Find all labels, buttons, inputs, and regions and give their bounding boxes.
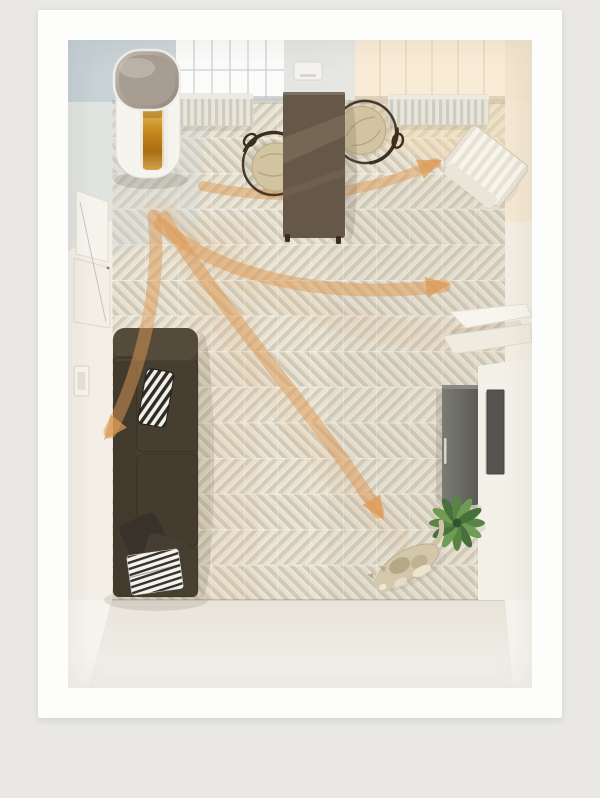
purifier-top-cap <box>114 50 180 110</box>
window-right <box>355 40 507 100</box>
purifier-filter-window <box>133 102 168 172</box>
wall-panel <box>485 390 504 474</box>
room-photo <box>68 40 532 688</box>
photo-frame-card <box>38 10 562 718</box>
sideboard <box>436 385 482 514</box>
leaning-frames <box>74 190 110 328</box>
dining-table <box>283 92 357 244</box>
light-switch <box>74 366 89 396</box>
left-wall <box>68 102 112 600</box>
wall-vent <box>294 62 322 80</box>
radiator-right <box>388 95 489 130</box>
sofa <box>104 328 214 611</box>
window-left <box>176 40 284 100</box>
bottom-floor <box>68 599 532 688</box>
striped-blanket <box>126 549 183 596</box>
